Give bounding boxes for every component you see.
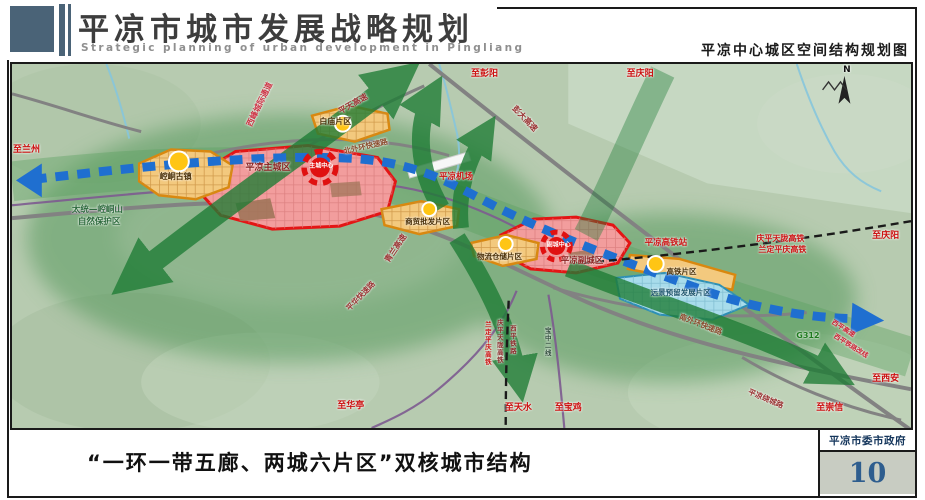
border-top bbox=[497, 7, 917, 9]
map-sheet-caption: 平凉中心城区空间结构规划图 bbox=[701, 40, 909, 60]
map-graphics bbox=[12, 64, 911, 428]
page-title-english: Strategic planning of urban development … bbox=[81, 42, 524, 54]
structure-caption: “一环一带五廊、两城六片区”双核城市结构 bbox=[87, 447, 533, 477]
agency-name: 平凉市委市政府 bbox=[820, 430, 915, 452]
title-block-bar bbox=[59, 4, 65, 56]
title-block-square bbox=[10, 6, 54, 52]
border-bottom bbox=[7, 496, 917, 498]
footer: “一环一带五廊、两城六片区”双核城市结构 平凉市委市政府 10 bbox=[9, 430, 915, 496]
planning-map: N至兰州西峰城际通道平天高速至彭阳至庆阳彭大高速北外环快速路白庙片区平凉主城区主… bbox=[10, 62, 913, 430]
border-right bbox=[915, 7, 917, 498]
title-block-bar-thin bbox=[68, 4, 71, 56]
page-number: 10 bbox=[820, 452, 915, 494]
title-block: 平凉市委市政府 10 bbox=[818, 430, 915, 496]
planning-sheet: 平凉市城市发展战略规划 Strategic planning of urban … bbox=[0, 0, 925, 500]
